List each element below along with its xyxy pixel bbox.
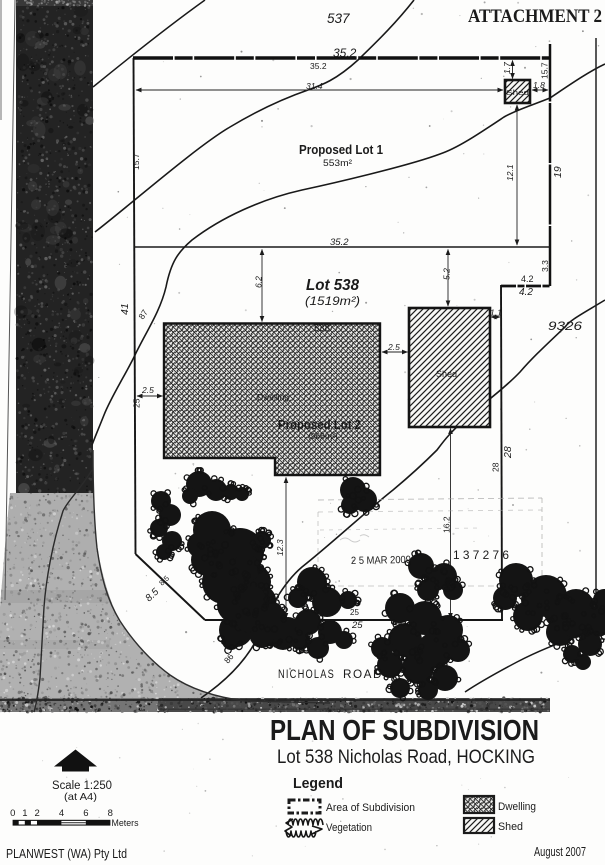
svg-text:12.1: 12.1 [505,164,515,181]
svg-text:35.2: 35.2 [330,237,349,248]
svg-text:Shed: Shed [506,88,529,97]
svg-text:(966m²): (966m²) [308,431,338,441]
svg-text:25: 25 [351,620,363,631]
svg-text:2.5: 2.5 [387,342,400,352]
svg-text:4.2: 4.2 [521,274,534,284]
svg-text:Lot 538: Lot 538 [306,277,359,294]
svg-text:12.3: 12.3 [275,539,285,556]
svg-text:1.7: 1.7 [502,62,512,74]
svg-text:ROAD: ROAD [343,669,383,681]
svg-text:6: 6 [83,808,88,819]
svg-text:15.7: 15.7 [540,62,550,79]
svg-text:Proposed Lot 2: Proposed Lot 2 [278,418,361,432]
svg-text:Meters: Meters [112,818,139,829]
svg-text:9326: 9326 [548,319,582,333]
svg-text:35.2: 35.2 [333,46,357,60]
svg-text:August 2007: August 2007 [534,845,586,859]
svg-text:6.2: 6.2 [254,276,264,288]
svg-text:1.8: 1.8 [533,80,545,90]
svg-text:553m²: 553m² [323,158,352,169]
svg-text:Shed: Shed [498,821,523,833]
svg-text:35.2: 35.2 [310,61,327,71]
svg-text:Vegetation: Vegetation [326,822,372,834]
svg-text:3.3: 3.3 [540,260,550,272]
svg-text:41: 41 [119,303,131,315]
svg-text:31.4: 31.4 [306,81,323,91]
svg-text:PLANWEST (WA) Pty Ltd: PLANWEST (WA) Pty Ltd [6,847,127,861]
svg-text:28: 28 [502,446,514,459]
svg-text:Area of Subdivision: Area of Subdivision [326,802,415,814]
svg-text:(1519m²): (1519m²) [305,294,360,308]
svg-text:1 3 7 2 7 6: 1 3 7 2 7 6 [453,548,509,562]
svg-text:1.1: 1.1 [490,308,502,318]
svg-text:2.5: 2.5 [141,385,154,395]
svg-text:Proposed Lot 1: Proposed Lot 1 [299,143,383,157]
svg-text:Dwelling: Dwelling [257,393,289,402]
svg-text:ATTACHMENT 2: ATTACHMENT 2 [468,7,602,27]
svg-text:5.2: 5.2 [442,268,452,280]
svg-text:2 5 MAR 2009: 2 5 MAR 2009 [351,554,411,567]
svg-text:PLAN OF SUBDIVISION: PLAN OF SUBDIVISION [270,715,539,747]
svg-text:28: 28 [491,462,501,472]
svg-text:4.2: 4.2 [519,287,533,298]
svg-text:16.2: 16.2 [442,516,452,533]
svg-text:Shed: Shed [436,369,457,379]
svg-text:Lot 538 Nicholas Road, HOCKING: Lot 538 Nicholas Road, HOCKING [277,746,535,768]
svg-text:25: 25 [350,608,359,617]
svg-text:1: 1 [22,808,27,819]
svg-text:Dwelling: Dwelling [498,801,536,813]
svg-text:538: 538 [314,323,330,334]
svg-text:15.7: 15.7 [131,153,141,170]
svg-text:(at A4): (at A4) [64,791,97,803]
svg-text:19: 19 [552,166,564,178]
svg-text:25: 25 [132,398,142,408]
svg-text:Legend: Legend [293,776,343,792]
svg-text:4: 4 [59,808,64,819]
svg-text:0: 0 [10,808,15,819]
svg-text:2: 2 [34,808,39,819]
svg-text:537: 537 [327,11,350,26]
svg-text:NICHOLAS: NICHOLAS [278,669,335,681]
